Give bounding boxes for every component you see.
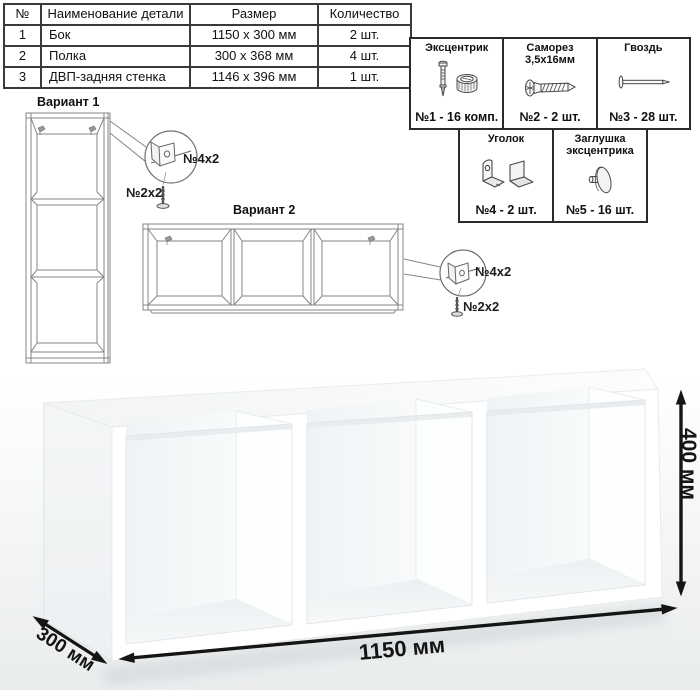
col-header-quantity: Количество <box>318 4 411 25</box>
table-row: 2 Полка 300 х 368 мм 4 шт. <box>4 46 411 67</box>
shelf-left-face <box>44 403 112 661</box>
hardware-item-count: №3 - 28 шт. <box>609 110 677 124</box>
part-size: 1150 х 300 мм <box>190 25 318 46</box>
hardware-item-count: №4 - 2 шт. <box>475 203 536 217</box>
col-header-name: Наименование детали <box>41 4 190 25</box>
variant-2-title: Вариант 2 <box>233 203 295 217</box>
part-name: Бок <box>41 25 190 46</box>
variant-1-title: Вариант 1 <box>37 95 99 109</box>
hardware-item-corner-bracket: Уголок №4 - 2 шт. <box>458 128 554 223</box>
hardware-item-nail: Гвоздь №3 - 28 шт. <box>598 37 691 130</box>
hardware-legend-row-1: Эксцентрик №1 - 16 комп. <box>409 37 691 130</box>
variant-2-drawing <box>143 224 403 313</box>
hardware-item-name: Эксцентрик <box>425 42 488 54</box>
bracket-qty-label: №4х2 <box>475 264 511 279</box>
shelf-compartment <box>126 411 292 644</box>
part-quantity: 1 шт. <box>318 67 411 88</box>
col-header-size: Размер <box>190 4 318 25</box>
hardware-item-name: Уголок <box>488 133 524 145</box>
part-quantity: 4 шт. <box>318 46 411 67</box>
col-header-number: № <box>4 4 41 25</box>
eccentric-cam-icon <box>429 59 485 105</box>
part-quantity: 2 шт. <box>318 25 411 46</box>
hardware-item-name: Гвоздь <box>624 42 662 54</box>
screw-icon <box>452 297 463 316</box>
variant-1-drawing <box>26 113 110 363</box>
part-name: Полка <box>41 46 190 67</box>
corner-bracket-icon <box>476 153 536 195</box>
shelf-compartment <box>487 387 645 603</box>
part-number: 2 <box>4 46 41 67</box>
screw-qty-label: №2х2 <box>463 299 499 314</box>
parts-table-header-row: № Наименование детали Размер Количество <box>4 4 411 25</box>
bracket-qty-label: №4х2 <box>183 151 219 166</box>
part-size: 1146 х 396 мм <box>190 67 318 88</box>
part-number: 1 <box>4 25 41 46</box>
part-name: ДВП-задняя стенка <box>41 67 190 88</box>
screw-qty-label: №2х2 <box>126 185 162 200</box>
screw-icon <box>522 71 578 105</box>
part-number: 3 <box>4 67 41 88</box>
hardware-item-eccentric: Эксцентрик №1 - 16 комп. <box>409 37 504 130</box>
table-row: 1 Бок 1150 х 300 мм 2 шт. <box>4 25 411 46</box>
cam-cap-icon <box>578 160 622 200</box>
part-size: 300 х 368 мм <box>190 46 318 67</box>
hardware-item-name: Заглушка эксцентрика <box>556 133 644 158</box>
hardware-item-screw: Саморез 3,5х16мм №2 - 2 шт. <box>504 37 597 130</box>
parts-table: № Наименование детали Размер Количество … <box>3 3 412 89</box>
hardware-item-count: №1 - 16 комп. <box>415 110 498 124</box>
height-dimension-label: 400 мм <box>674 428 700 532</box>
hardware-item-name: Саморез 3,5х16мм <box>506 42 593 67</box>
hardware-item-cam-cap: Заглушка эксцентрика №5 - 16 шт. <box>554 128 648 223</box>
hardware-item-count: №2 - 2 шт. <box>519 110 580 124</box>
hardware-legend-row-2: Уголок №4 - 2 шт. Заглушка эксцентрика <box>458 128 648 223</box>
shelf-compartment <box>307 399 472 624</box>
hardware-item-count: №5 - 16 шт. <box>566 203 634 217</box>
table-row: 3 ДВП-задняя стенка 1146 х 396 мм 1 шт. <box>4 67 411 88</box>
assembly-instruction-page: № Наименование детали Размер Количество … <box>0 0 700 690</box>
nail-icon <box>615 69 671 95</box>
